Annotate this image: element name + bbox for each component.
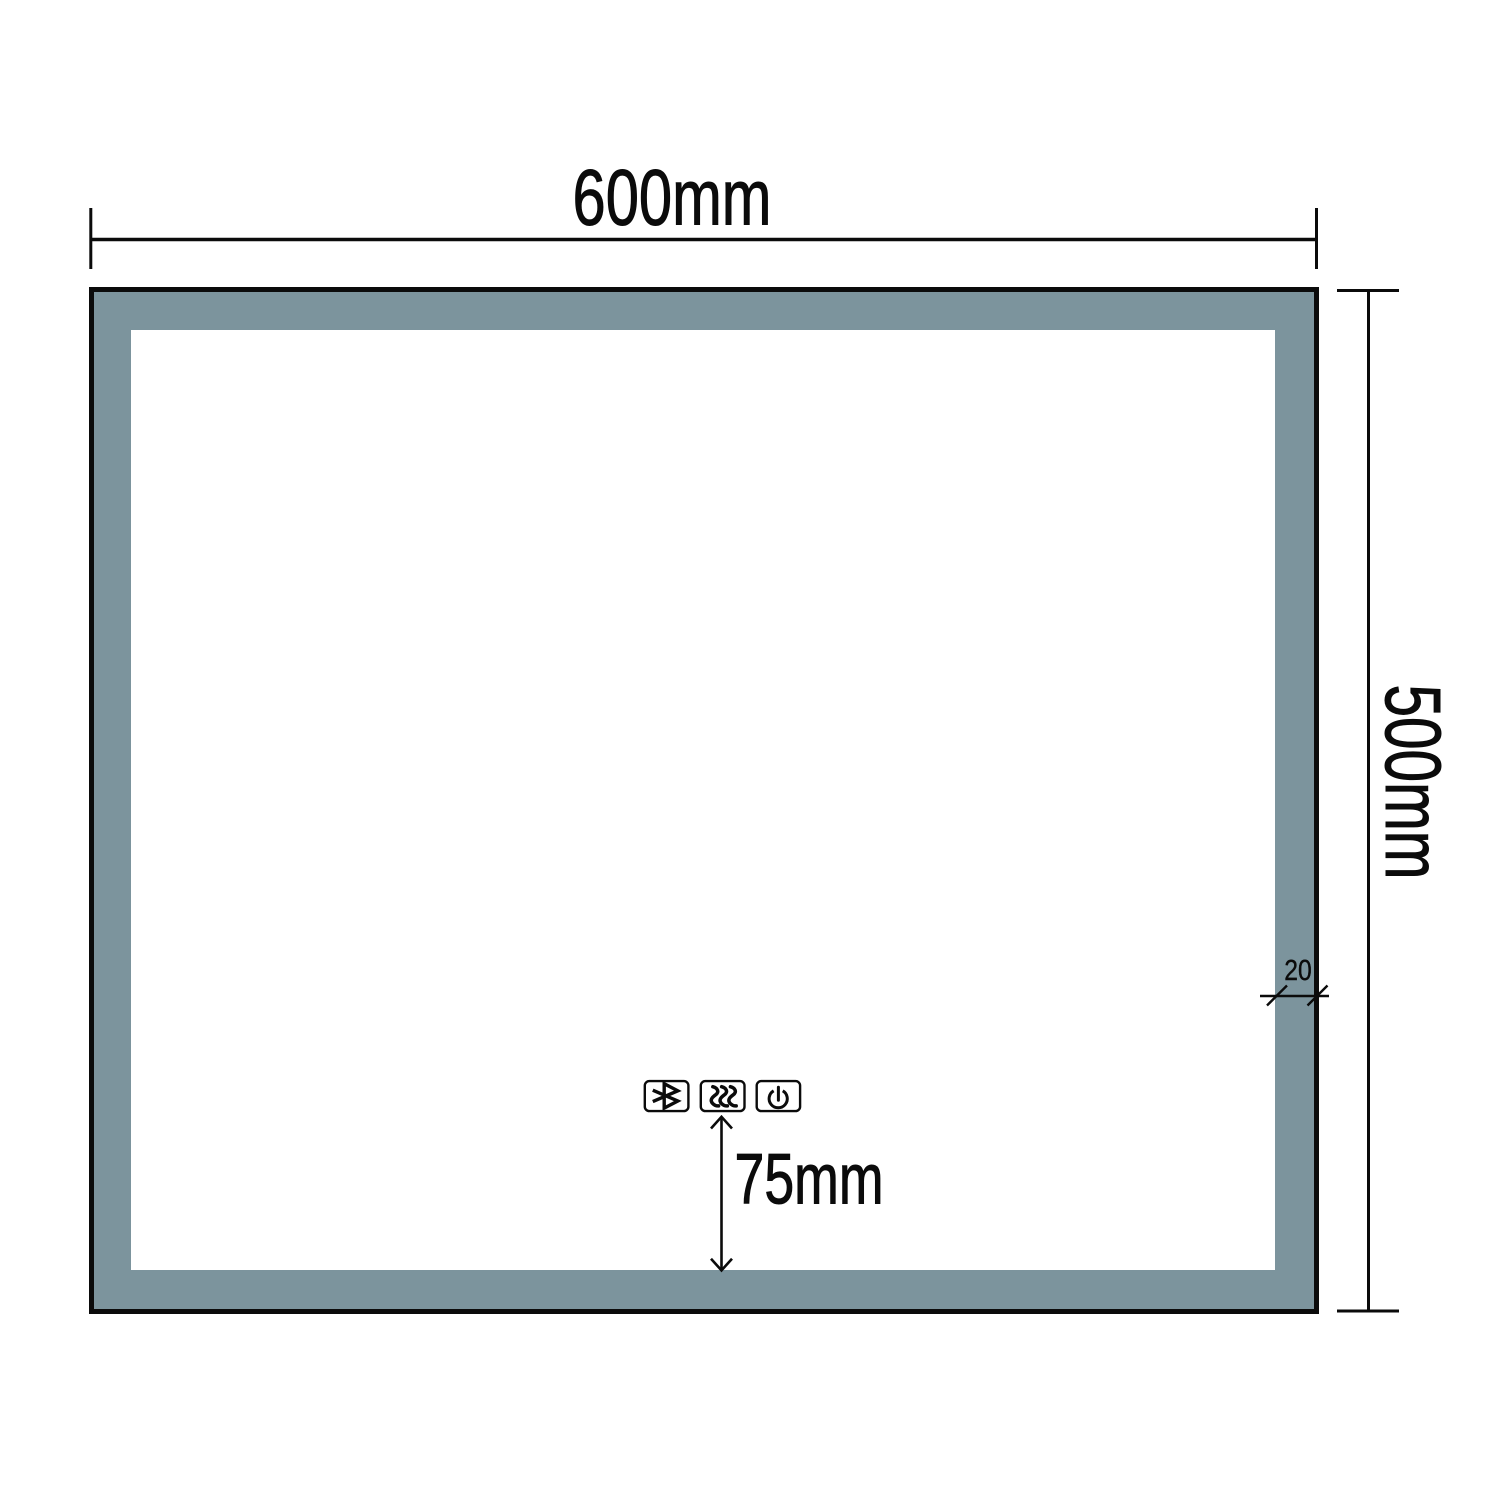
svg-text:600mm: 600mm bbox=[573, 153, 772, 242]
svg-text:75mm: 75mm bbox=[735, 1140, 884, 1220]
svg-text:20: 20 bbox=[1284, 954, 1312, 986]
svg-text:500mm: 500mm bbox=[1369, 685, 1457, 880]
